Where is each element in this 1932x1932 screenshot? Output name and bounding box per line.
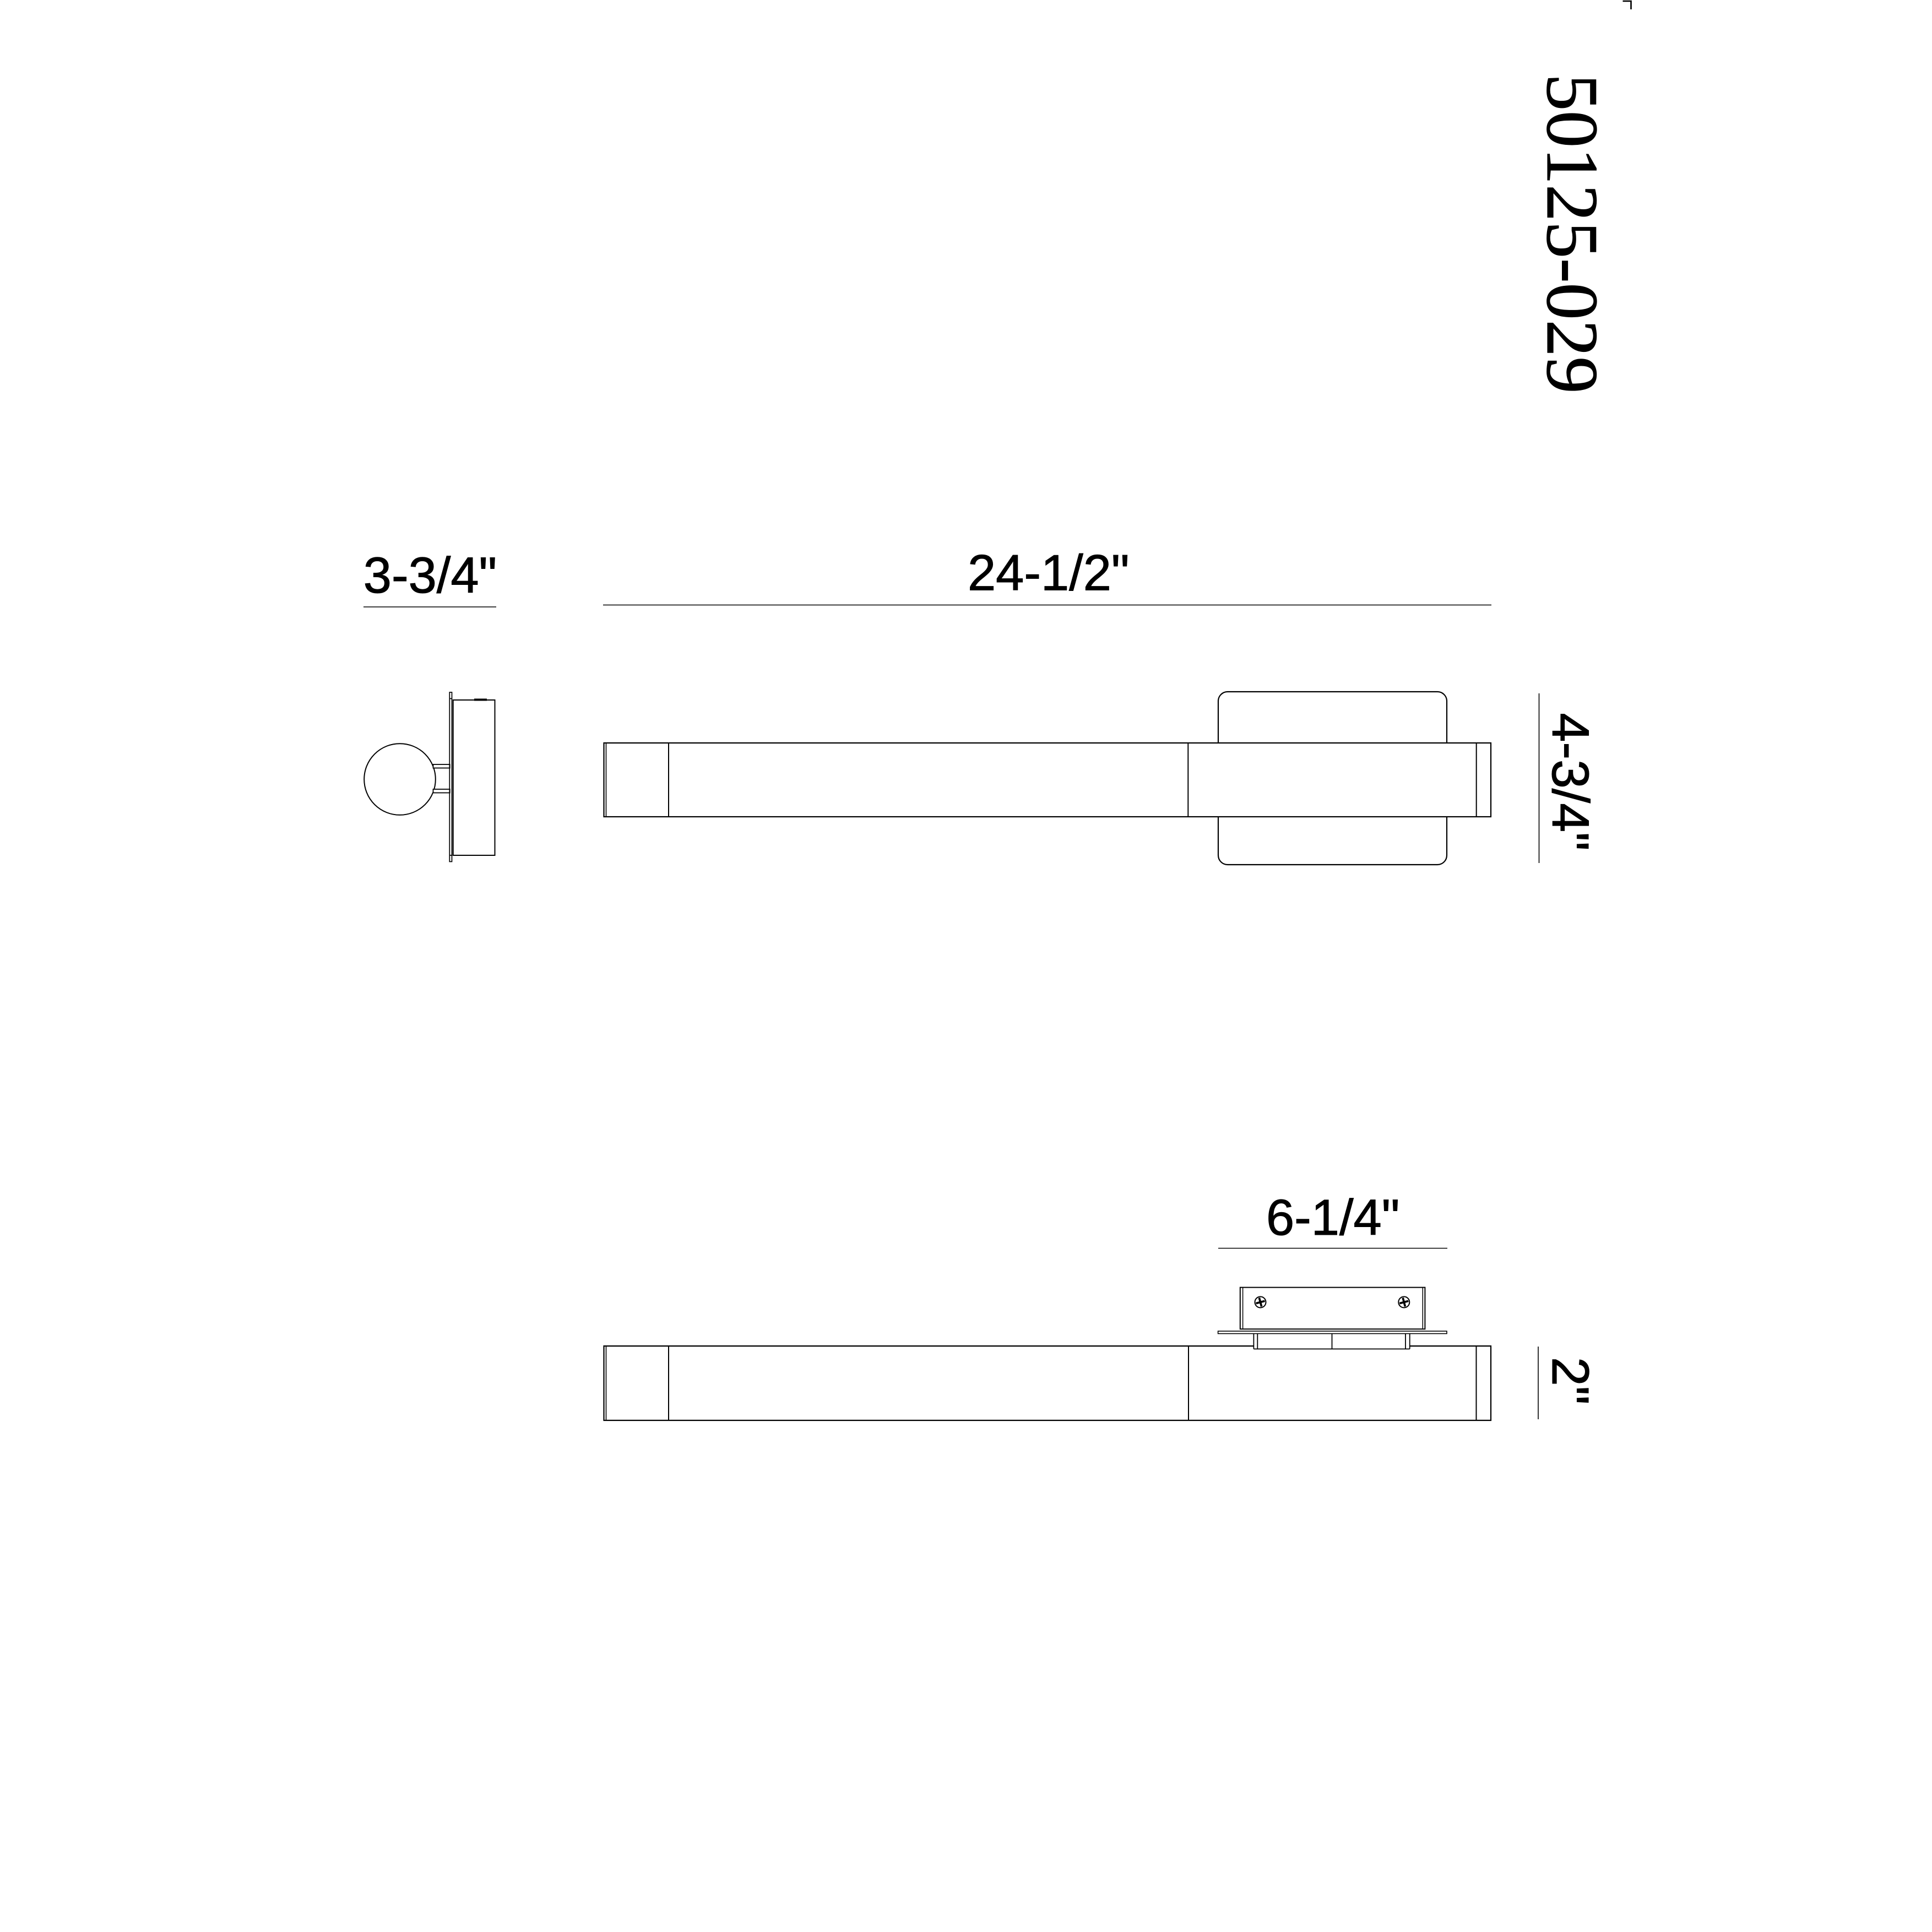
svg-text:24-1/2": 24-1/2" — [968, 545, 1130, 601]
svg-text:50125-029: 50125-029 — [1532, 74, 1613, 394]
svg-text:4-3/4": 4-3/4" — [1541, 713, 1599, 851]
svg-text:2": 2" — [1541, 1357, 1599, 1405]
svg-text:6-1/4": 6-1/4" — [1266, 1190, 1399, 1246]
svg-text:3-3/4": 3-3/4" — [363, 547, 497, 604]
